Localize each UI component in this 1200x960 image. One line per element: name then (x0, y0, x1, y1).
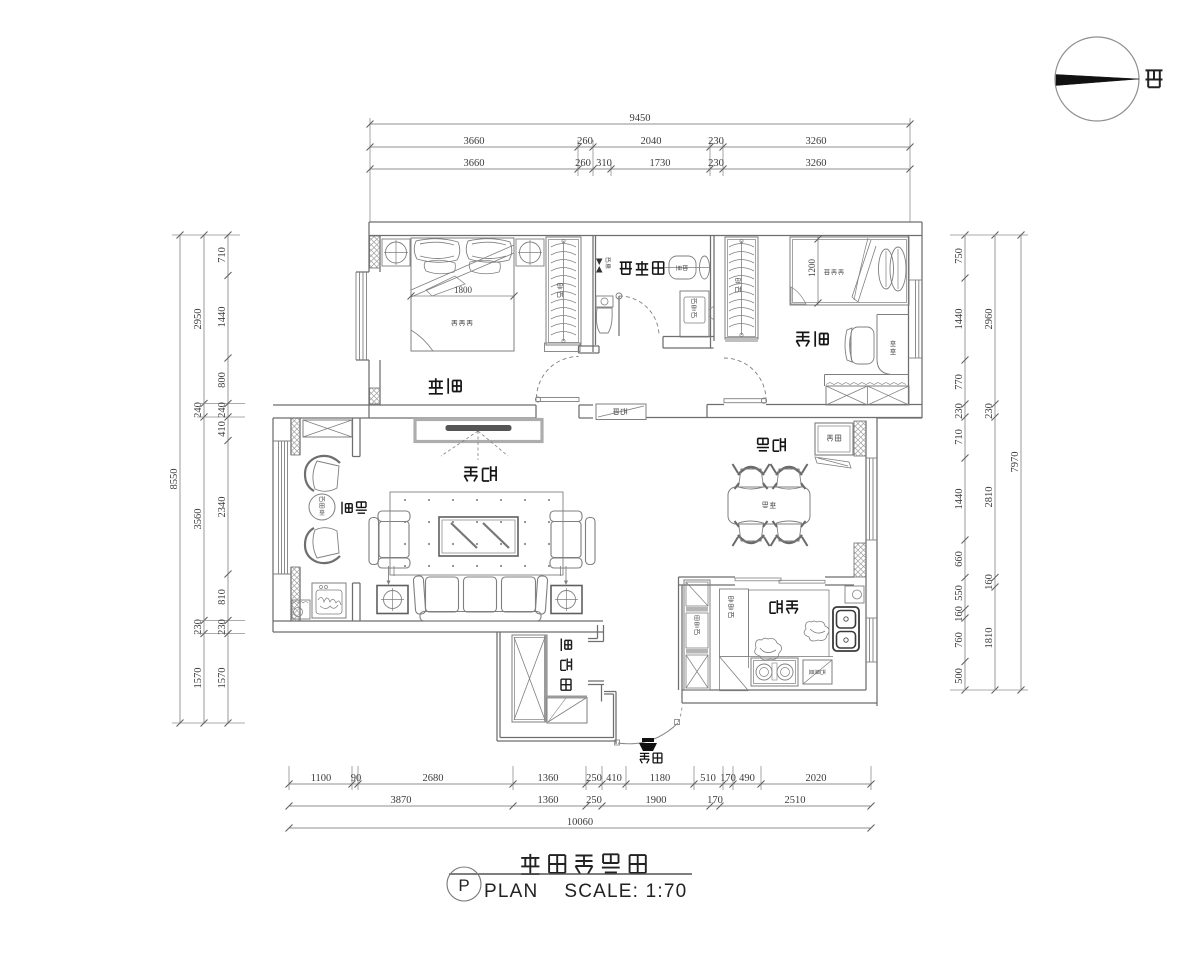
svg-text:1360: 1360 (538, 773, 559, 784)
svg-text:2510: 2510 (785, 795, 806, 806)
svg-text:510: 510 (700, 773, 716, 784)
svg-text:1180: 1180 (650, 773, 671, 784)
svg-text:1440: 1440 (954, 489, 965, 510)
svg-text:710: 710 (217, 247, 228, 263)
svg-text:230: 230 (708, 158, 724, 169)
svg-text:3260: 3260 (806, 136, 827, 147)
svg-text:1360: 1360 (538, 795, 559, 806)
svg-text:7970: 7970 (1010, 452, 1021, 473)
svg-text:PLAN SCALE: 1:70: PLAN SCALE: 1:70 (484, 881, 687, 902)
svg-text:2960: 2960 (984, 309, 995, 330)
svg-text:750: 750 (954, 248, 965, 264)
svg-text:260: 260 (575, 158, 591, 169)
svg-text:3560: 3560 (193, 509, 204, 530)
svg-text:550: 550 (954, 585, 965, 601)
svg-text:1100: 1100 (311, 773, 332, 784)
svg-text:660: 660 (954, 551, 965, 567)
svg-text:710: 710 (954, 429, 965, 445)
svg-text:260: 260 (577, 136, 593, 147)
svg-text:250: 250 (586, 773, 602, 784)
svg-text:1440: 1440 (217, 307, 228, 328)
svg-text:810: 810 (217, 589, 228, 605)
svg-text:230: 230 (708, 136, 724, 147)
svg-text:160: 160 (984, 574, 995, 590)
svg-text:3660: 3660 (464, 136, 485, 147)
svg-text:160: 160 (954, 606, 965, 622)
svg-text:170: 170 (720, 773, 736, 784)
svg-text:800: 800 (217, 372, 228, 388)
svg-text:250: 250 (586, 795, 602, 806)
svg-text:1440: 1440 (954, 309, 965, 330)
svg-text:10060: 10060 (567, 817, 593, 828)
svg-text:240: 240 (193, 402, 204, 418)
svg-text:2950: 2950 (193, 309, 204, 330)
svg-text:410: 410 (606, 773, 622, 784)
svg-text:3260: 3260 (806, 158, 827, 169)
svg-text:3870: 3870 (391, 795, 412, 806)
svg-text:2680: 2680 (423, 773, 444, 784)
svg-text:3660: 3660 (464, 158, 485, 169)
svg-text:1570: 1570 (193, 668, 204, 689)
svg-text:8550: 8550 (169, 469, 180, 490)
svg-text:230: 230 (984, 403, 995, 419)
svg-text:1200: 1200 (807, 259, 817, 278)
svg-text:1810: 1810 (984, 628, 995, 649)
svg-text:170: 170 (707, 795, 723, 806)
svg-text:410: 410 (217, 421, 228, 437)
svg-text:490: 490 (739, 773, 755, 784)
svg-text:1730: 1730 (650, 158, 671, 169)
svg-text:310: 310 (596, 158, 612, 169)
svg-text:2020: 2020 (806, 773, 827, 784)
svg-text:230: 230 (193, 619, 204, 635)
svg-text:2810: 2810 (984, 487, 995, 508)
svg-text:2040: 2040 (641, 136, 662, 147)
svg-text:1900: 1900 (646, 795, 667, 806)
svg-text:2340: 2340 (217, 497, 228, 518)
svg-text:230: 230 (954, 403, 965, 419)
svg-text:1800: 1800 (454, 285, 473, 295)
svg-text:240: 240 (217, 402, 228, 418)
svg-text:90: 90 (351, 773, 362, 784)
svg-text:770: 770 (954, 374, 965, 390)
svg-text:760: 760 (954, 632, 965, 648)
svg-text:9450: 9450 (630, 113, 651, 124)
svg-text:230: 230 (217, 619, 228, 635)
svg-text:P: P (458, 876, 469, 895)
svg-text:1570: 1570 (217, 668, 228, 689)
svg-text:500: 500 (954, 668, 965, 684)
